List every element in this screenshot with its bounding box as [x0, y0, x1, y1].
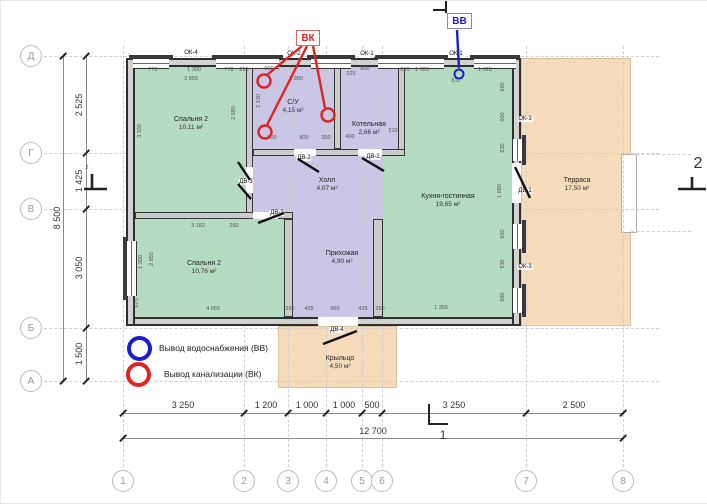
- sewer-outlet-callout: ВК: [296, 30, 320, 46]
- room-area: 10,11 м²: [174, 124, 208, 133]
- tiny-dim: 675: [134, 298, 140, 307]
- tiny-dim: 1 300: [138, 255, 144, 269]
- dim-left: 1 425: [74, 168, 84, 195]
- floor-plan-canvas: 8 500 12 700 2 1 ВК ВВ Вывод водоснабжен…: [0, 0, 707, 504]
- tiny-dim: 1 680: [497, 184, 503, 198]
- tiny-dim: 250: [229, 223, 238, 229]
- room-area: 17,50 м²: [564, 185, 591, 194]
- tiny-dim: 4 055: [206, 306, 220, 312]
- dim-bottom: 1 000: [294, 400, 321, 410]
- door-label: ДВ-3: [238, 179, 253, 185]
- tiny-dim: 3 182: [191, 223, 205, 229]
- door-label: ДВ-1: [517, 188, 532, 194]
- room-area: 2,66 м²: [352, 129, 386, 138]
- legend-sewer-label: Вывод канализации (ВК): [164, 369, 261, 379]
- room-label-boiler: Котельная2,66 м²: [352, 120, 386, 138]
- room-area: 4,50 м²: [326, 363, 355, 372]
- tiny-dim: 2 130: [256, 94, 262, 108]
- tiny-dim: 1 950: [289, 76, 303, 82]
- tiny-dim: 2: [85, 165, 88, 171]
- dim-total-left: 8 500: [52, 205, 62, 232]
- window-label: ОК-1: [448, 51, 464, 57]
- room-name: С/У: [282, 98, 303, 107]
- room-name: Котельная: [352, 120, 386, 129]
- grid-bubble-col-4: 4: [315, 470, 337, 492]
- door-label: ДВ-2: [365, 154, 380, 160]
- tiny-dim: 250: [285, 306, 294, 312]
- grid-bubble-col-1: 1: [112, 470, 134, 492]
- wall-interior: [253, 149, 405, 156]
- grid-line-row-В: [19, 209, 659, 210]
- door-label: ДВ-2: [296, 155, 311, 161]
- window-left-wall: [126, 241, 137, 296]
- grid-line-col-8: [623, 46, 624, 467]
- tiny-dim: 350: [321, 135, 330, 141]
- water-supply-legend-icon: [127, 336, 152, 361]
- room-name: Прихожая: [326, 249, 358, 258]
- tiny-dim: 250: [400, 67, 409, 73]
- window-ok1: [378, 58, 444, 69]
- grid-line-row-А: [19, 381, 659, 382]
- dimension-line: [123, 438, 623, 439]
- grid-line-col-2: [244, 46, 245, 467]
- dim-left: 2 525: [74, 92, 84, 119]
- section-mark-1-label: 1: [440, 428, 447, 442]
- grid-bubble-row-Б: Б: [20, 317, 42, 339]
- tiny-dim: 500: [500, 112, 506, 121]
- grid-bubble-col-5: 5: [351, 470, 373, 492]
- grid-bubble-col-3: 3: [277, 470, 299, 492]
- wall-interior: [334, 67, 341, 149]
- tiny-dim: 400: [345, 134, 354, 140]
- door-label: ДВ-3: [269, 210, 284, 216]
- grid-bubble-col-6: 6: [371, 470, 393, 492]
- grid-bubble-col-2: 2: [233, 470, 255, 492]
- room-name: Спальня 2: [174, 115, 208, 124]
- grid-bubble-row-В: В: [20, 198, 42, 220]
- dim-bottom: 500: [362, 400, 381, 410]
- dim-left: 1 500: [74, 341, 84, 368]
- room-entry: [293, 219, 373, 317]
- window-label: ОК-4: [183, 50, 199, 56]
- door-label: ДВ-4: [329, 327, 344, 333]
- grid-bubble-col-7: 7: [515, 470, 537, 492]
- window-label: ОК-3: [517, 264, 533, 270]
- dim-bottom: 2 500: [561, 400, 588, 410]
- dimension-line: [123, 413, 623, 414]
- grid-bubble-row-Д: Д: [20, 45, 42, 67]
- tiny-dim: 1 355: [434, 305, 448, 311]
- dimension-line: [63, 56, 64, 381]
- dim-bottom: 3 250: [170, 400, 197, 410]
- dim-left: 3 050: [74, 255, 84, 282]
- room-area: 4,07 м²: [316, 185, 337, 194]
- tiny-dim: 1 028: [478, 67, 492, 73]
- room-name: Спальня 2: [187, 259, 221, 268]
- tiny-dim: 2 855: [184, 76, 198, 82]
- grid-bubble-row-Г: Г: [20, 142, 42, 164]
- tiny-dim: 880: [500, 82, 506, 91]
- door-opening: [512, 163, 521, 203]
- room-label-bathroom: С/У4,15 м²: [282, 98, 303, 116]
- tiny-dim: 930: [500, 259, 506, 268]
- room-area: 4,90 м²: [326, 258, 358, 267]
- dim-bottom: 3 250: [441, 400, 468, 410]
- tiny-dim: 250: [239, 67, 248, 73]
- room-name: Холл: [316, 176, 337, 185]
- dim-bottom: 1 000: [331, 400, 358, 410]
- tiny-dim: 900: [264, 66, 273, 72]
- room-bedroom2-top: [135, 67, 246, 213]
- tiny-dim: 630: [500, 143, 506, 152]
- tiny-dim: 2 580: [231, 106, 237, 120]
- tiny-dim: 778: [224, 67, 233, 73]
- grid-line: [631, 154, 691, 155]
- wall-interior: [246, 67, 253, 219]
- window-ok2: [311, 58, 351, 69]
- tiny-dim: 2 855: [149, 252, 155, 266]
- water-outlet-callout: ВВ: [447, 13, 472, 29]
- tiny-dim: 1 028: [415, 67, 429, 73]
- grid-line-col-7: [526, 46, 527, 467]
- tiny-dim: 1 300: [187, 67, 201, 73]
- room-label-entry: Прихожая4,90 м²: [326, 249, 358, 267]
- grid-bubble-row-А: А: [20, 370, 42, 392]
- tiny-dim: 800: [360, 66, 369, 72]
- room-label-bedroom2-top: Спальня 210,11 м²: [174, 115, 208, 133]
- room-area: 10,76 м²: [187, 268, 221, 277]
- room-label-porch: Крыльцо4,50 м²: [326, 354, 355, 372]
- tiny-dim: 225: [346, 71, 355, 77]
- legend-water-supply-label: Вывод водоснабжения (ВВ): [159, 343, 268, 353]
- grid-bubble-col-8: 8: [612, 470, 634, 492]
- window-label: ОК-3: [517, 116, 533, 122]
- tiny-dim: 3 335: [137, 124, 143, 138]
- tiny-dim: 960: [330, 306, 339, 312]
- dim-bottom: 1 200: [253, 400, 280, 410]
- tiny-dim: 812: [451, 78, 460, 84]
- grid-line: [631, 231, 691, 232]
- room-name: Крыльцо: [326, 354, 355, 363]
- room-name: Кухня-гостинная: [421, 192, 474, 201]
- room-label-hall: Холл4,07 м²: [316, 176, 337, 194]
- window-label: ОК-1: [359, 51, 375, 57]
- tiny-dim: 800: [267, 135, 276, 141]
- room-label-bedroom2-bottom: Спальня 210,76 м²: [187, 259, 221, 277]
- window-label: ОК-2: [286, 51, 302, 57]
- window-ok3-top: [512, 139, 523, 161]
- wall-interior: [373, 219, 383, 317]
- tiny-dim: 250: [375, 306, 384, 312]
- tiny-dim: 650: [500, 229, 506, 238]
- tiny-dim: 425: [358, 306, 367, 312]
- window-ok3-mid: [512, 224, 523, 249]
- room-area: 19,65 м²: [421, 201, 474, 210]
- room-label-kitchen-living: Кухня-гостинная19,65 м²: [421, 192, 474, 210]
- room-label-terrace: Терраса17,50 м²: [564, 176, 591, 194]
- wall-interior: [284, 219, 293, 317]
- room-area: 4,15 м²: [282, 107, 303, 116]
- tiny-dim: 880: [500, 292, 506, 301]
- tiny-dim: 778: [148, 67, 157, 73]
- room-name: Терраса: [564, 176, 591, 185]
- door-opening: [318, 317, 358, 326]
- window-ok3-bottom: [512, 288, 523, 313]
- tiny-dim: 425: [304, 306, 313, 312]
- tiny-dim: 800: [299, 135, 308, 141]
- wall-interior: [398, 67, 405, 156]
- dimension-line: [86, 56, 87, 381]
- section-mark-2-label: 2: [694, 155, 703, 173]
- dim-total-bottom: 12 700: [357, 426, 389, 436]
- tiny-dim: 210: [388, 128, 397, 134]
- sewer-legend-icon: [126, 362, 151, 387]
